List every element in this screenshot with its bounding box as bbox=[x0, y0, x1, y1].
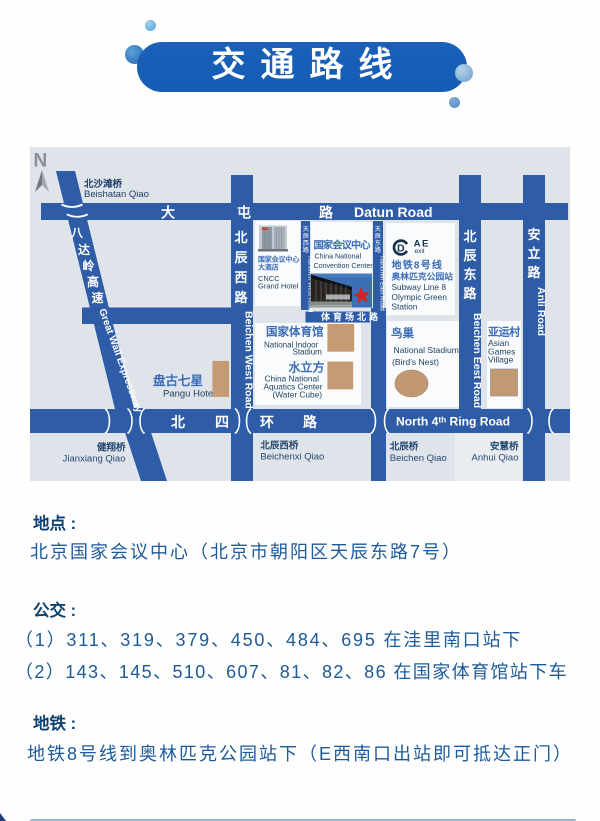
svg-text:大酒店: 大酒店 bbox=[258, 263, 279, 272]
svg-text:辰: 辰 bbox=[303, 233, 309, 240]
svg-text:北辰西桥: 北辰西桥 bbox=[260, 440, 299, 452]
svg-text:西: 西 bbox=[303, 240, 309, 247]
svg-text:路: 路 bbox=[464, 286, 478, 301]
svg-text:exit: exit bbox=[415, 248, 425, 255]
svg-text:体育场北路: 体育场北路 bbox=[321, 311, 381, 322]
svg-text:北辰桥: 北辰桥 bbox=[390, 441, 419, 453]
svg-text:辰: 辰 bbox=[464, 248, 478, 263]
svg-text:北: 北 bbox=[235, 230, 248, 245]
svg-text:路: 路 bbox=[303, 246, 310, 254]
svg-text:North 4th Ring Road: North 4th Ring Road bbox=[396, 415, 510, 429]
svg-text:西: 西 bbox=[235, 270, 248, 285]
svg-text:Anli Road: Anli Road bbox=[535, 287, 547, 336]
svg-text:Subway Line 8: Subway Line 8 bbox=[392, 282, 447, 292]
svg-text:Pangu Hotel: Pangu Hotel bbox=[163, 389, 215, 400]
svg-text:八: 八 bbox=[70, 226, 84, 240]
svg-text:D: D bbox=[397, 243, 405, 255]
svg-text:Beishatan Qiao: Beishatan Qiao bbox=[84, 189, 149, 200]
svg-text:(Bird's Nest): (Bird's Nest) bbox=[392, 357, 439, 367]
svg-text:达: 达 bbox=[78, 242, 90, 257]
svg-text:(Water Cube): (Water Cube) bbox=[273, 390, 323, 400]
svg-text:路: 路 bbox=[375, 246, 382, 254]
svg-text:Beichen Qiao: Beichen Qiao bbox=[390, 453, 447, 464]
svg-text:屯: 屯 bbox=[237, 205, 251, 221]
svg-text:安: 安 bbox=[528, 227, 541, 242]
svg-text:东: 东 bbox=[464, 267, 477, 282]
svg-text:路: 路 bbox=[303, 414, 318, 430]
svg-text:辰: 辰 bbox=[375, 233, 381, 240]
svg-text:环: 环 bbox=[260, 414, 274, 430]
svg-text:Tianchen East Road: Tianchen East Road bbox=[379, 255, 386, 311]
svg-text:健翔桥: 健翔桥 bbox=[97, 442, 126, 454]
svg-text:地铁8号线: 地铁8号线 bbox=[392, 259, 444, 272]
svg-text:奥林匹克公园站: 奥林匹克公园站 bbox=[392, 271, 454, 282]
svg-text:盘古七星: 盘古七星 bbox=[153, 373, 203, 388]
svg-text:China National: China National bbox=[315, 253, 362, 261]
svg-text:立: 立 bbox=[528, 246, 541, 261]
svg-text:Convention Center: Convention Center bbox=[314, 262, 374, 270]
svg-text:大: 大 bbox=[161, 205, 175, 221]
svg-text:路: 路 bbox=[319, 205, 334, 221]
svg-text:亚运村: 亚运村 bbox=[488, 325, 520, 339]
svg-text:路: 路 bbox=[235, 290, 249, 305]
svg-text:Stadium: Stadium bbox=[293, 348, 323, 357]
svg-text:Station: Station bbox=[392, 302, 418, 312]
svg-text:北: 北 bbox=[171, 414, 185, 430]
svg-text:Jianxiang Qiao: Jianxiang Qiao bbox=[63, 454, 126, 465]
svg-text:N: N bbox=[34, 151, 48, 172]
svg-text:鸟巢: 鸟巢 bbox=[391, 326, 414, 340]
svg-text:Olympic Green: Olympic Green bbox=[392, 292, 448, 302]
svg-text:Anhui Qiao: Anhui Qiao bbox=[471, 453, 518, 464]
svg-text:国家体育馆: 国家体育馆 bbox=[266, 325, 324, 339]
svg-text:高: 高 bbox=[87, 274, 99, 289]
svg-text:Beichenxi Qiao: Beichenxi Qiao bbox=[260, 452, 324, 463]
svg-text:辰: 辰 bbox=[235, 250, 249, 265]
svg-text:速: 速 bbox=[92, 290, 104, 305]
svg-text:Beichen West Road: Beichen West Road bbox=[243, 311, 255, 409]
svg-text:北: 北 bbox=[464, 229, 477, 244]
svg-text:路: 路 bbox=[528, 265, 542, 280]
svg-text:国家会议中心: 国家会议中心 bbox=[314, 239, 372, 252]
svg-text:Beichen Eest Road: Beichen Eest Road bbox=[471, 313, 483, 408]
svg-text:天: 天 bbox=[375, 226, 381, 233]
svg-text:东: 东 bbox=[375, 239, 381, 247]
svg-text:岭: 岭 bbox=[83, 258, 95, 273]
svg-text:Datun Road: Datun Road bbox=[354, 204, 433, 220]
svg-text:National Stadium: National Stadium bbox=[394, 345, 459, 355]
svg-text:国家会议中心: 国家会议中心 bbox=[258, 255, 299, 264]
svg-text:Grand Hotel: Grand Hotel bbox=[258, 282, 299, 291]
svg-text:水立方: 水立方 bbox=[289, 360, 325, 375]
svg-text:安慧桥: 安慧桥 bbox=[490, 441, 519, 453]
svg-text:Village: Village bbox=[488, 355, 514, 365]
svg-text:天: 天 bbox=[303, 226, 309, 233]
svg-text:四: 四 bbox=[215, 414, 229, 430]
